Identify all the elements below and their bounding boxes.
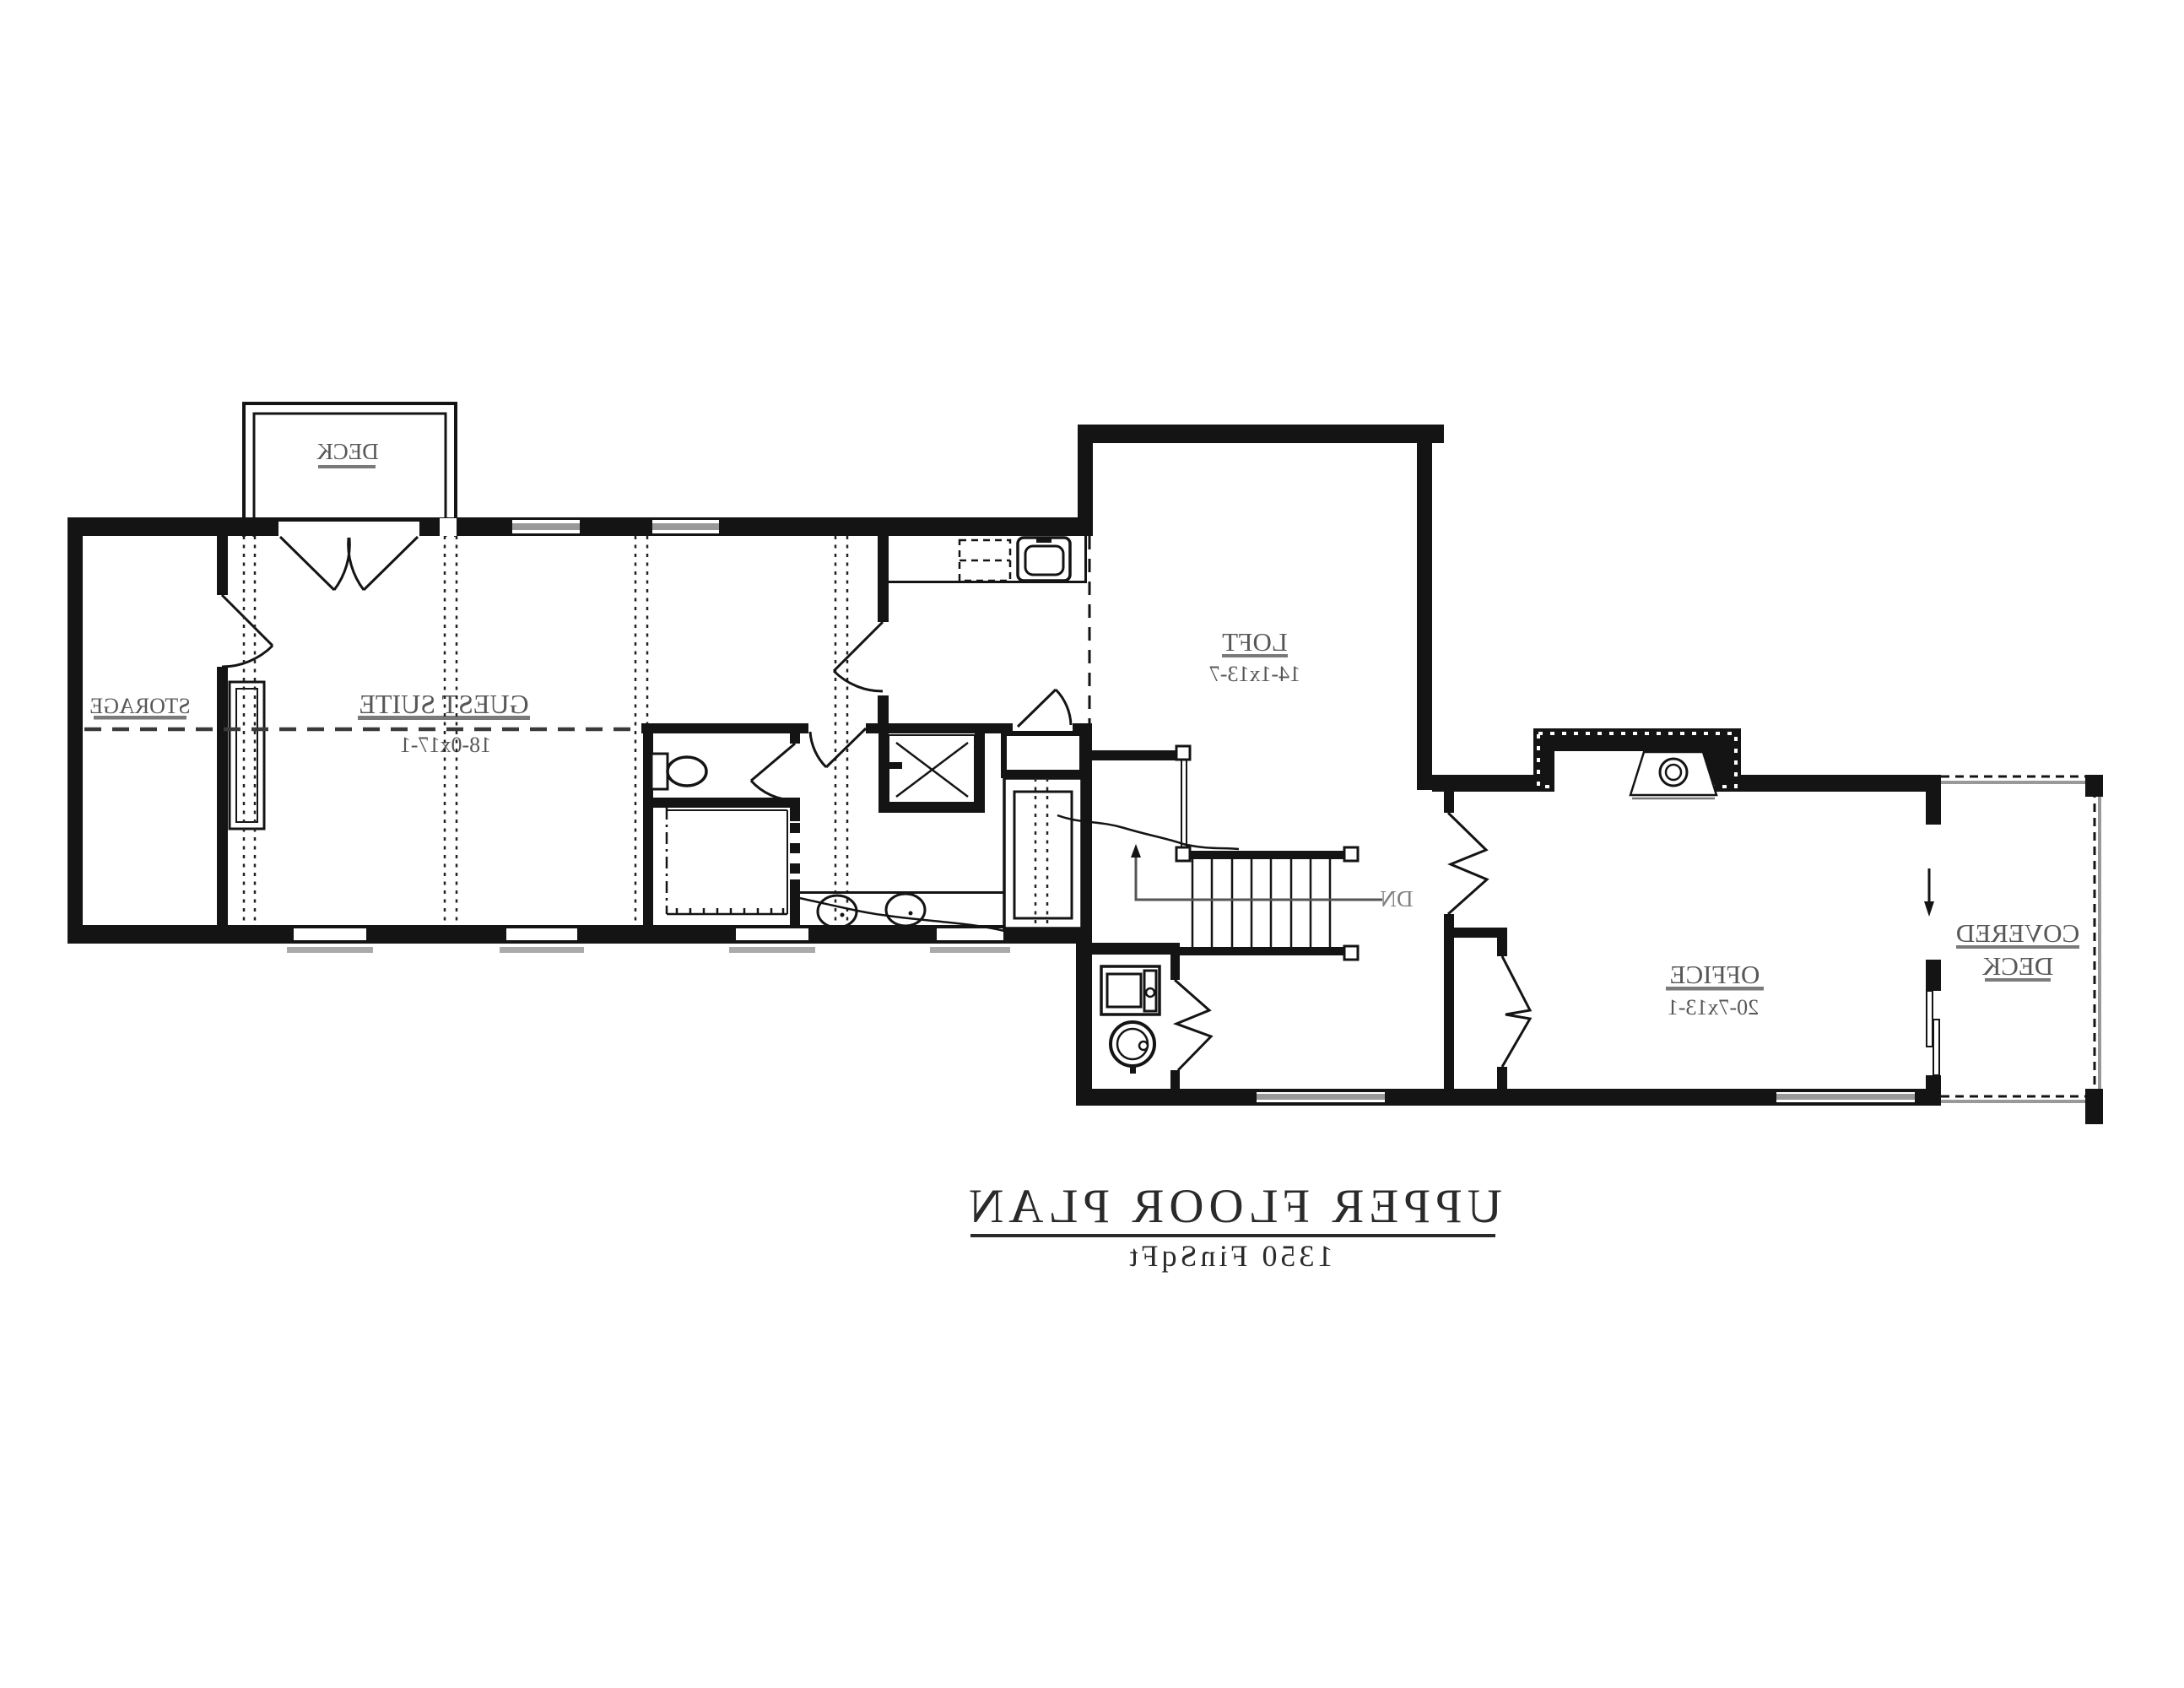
svg-text:14-1x13-7: 14-1x13-7 [1209,662,1300,686]
svg-text:20-7x13-1: 20-7x13-1 [1668,995,1759,1020]
svg-text:DECK: DECK [316,439,379,464]
svg-text:DN: DN [1381,886,1414,912]
svg-text:STORAGE: STORAGE [89,694,190,718]
svg-text:LOFT: LOFT [1222,627,1288,657]
svg-text:OFFICE: OFFICE [1670,960,1760,989]
svg-text:1350 FinSqFt: 1350 FinSqFt [1126,1239,1333,1273]
svg-text:18-0x17-1: 18-0x17-1 [400,733,491,757]
svg-text:DECK: DECK [1981,951,2053,981]
svg-text:COVERED: COVERED [1956,918,2079,948]
svg-text:UPPER FLOOR PLAN: UPPER FLOOR PLAN [964,1180,1502,1233]
